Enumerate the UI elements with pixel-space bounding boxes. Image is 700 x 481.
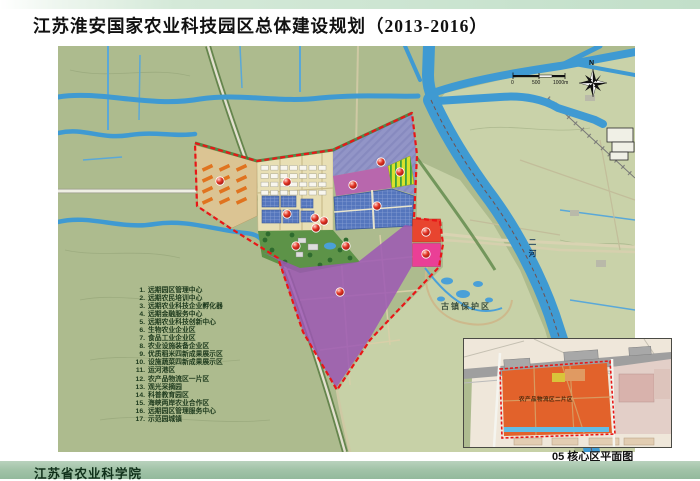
numbered-marker-icon [283,210,291,218]
numbered-marker-icon [283,178,291,186]
numbered-marker-icon [311,214,319,222]
legend-item-number: 14. [133,392,145,400]
footer-organization: 江苏省农业科学院 [34,463,142,481]
legend-item: 4.远期金融服务中心 [133,311,258,319]
legend-item-number: 1. [133,287,145,295]
legend-item-number: 8. [133,343,145,351]
legend-item-label: 科普教育园区 [148,392,189,400]
legend-item: 2.远期农民培训中心 [133,295,258,303]
inset-zone-label: 农产品物流区二片区 [519,395,573,403]
legend-item: 15.海峡两岸农业合作区 [133,400,258,408]
numbered-marker-icon [336,288,344,296]
inset-core-area-map: 农产品物流区二片区 [463,338,672,448]
legend-item-label: 远期园区管理中心 [148,287,202,295]
scale-label-500: 500 [532,80,540,86]
legend-item: 14.科普教育园区 [133,392,258,400]
legend-item-number: 2. [133,295,145,303]
legend-item: 12.农产品物流区一片区 [133,376,258,384]
legend-item-number: 3. [133,303,145,311]
numbered-marker-icon [349,181,357,189]
numbered-marker-icon [292,242,300,250]
plan-sheet: 江苏淮安国家农业科技园区总体建设规划（2013-2016） [0,0,700,481]
numbered-marker-icon [312,224,320,232]
legend-item-number: 11. [133,367,145,375]
numbered-marker-icon [373,202,381,210]
legend-item: 17.示范园城镇 [133,416,258,424]
numbered-marker-icon [422,228,430,236]
legend-item-number: 16. [133,408,145,416]
legend-item-number: 7. [133,335,145,343]
legend-item-number: 12. [133,376,145,384]
page-title: 江苏淮安国家农业科技园区总体建设规划（2013-2016） [33,13,488,38]
numbered-marker-icon [422,250,430,258]
ancient-town-label: 古镇保护区 [441,301,491,312]
inset-canvas [464,339,671,447]
legend-item-label: 海峡两岸农业合作区 [148,400,209,408]
legend-item-number: 15. [133,400,145,408]
legend-item: 3.远期农业科技企业孵化器 [133,303,258,311]
legend-item: 16.远期园区管理服务中心 [133,408,258,416]
legend-list: 1.远期园区管理中心2.远期农民培训中心3.远期农业科技企业孵化器4.远期金融服… [133,287,258,424]
top-decor-band [0,0,700,9]
numbered-marker-icon [342,242,350,250]
legend-item: 1.远期园区管理中心 [133,287,258,295]
numbered-marker-icon [377,158,385,166]
scale-label-0: 0 [511,80,514,86]
legend-item: 11.运河港区 [133,367,258,375]
numbered-marker-icon [396,168,404,176]
numbered-marker-icon [216,177,224,185]
legend-item-number: 5. [133,319,145,327]
legend-item-label: 远期农民培训中心 [148,295,202,303]
river-name-label: 二河 [527,238,538,261]
compass-north-label: N [589,60,594,67]
scale-label-1000: 1000m [553,80,568,86]
legend-item-label: 远期农业科技企业孵化器 [148,303,223,311]
legend-item-label: 远期园区管理服务中心 [148,408,216,416]
park-pond [324,243,336,250]
legend-item-number: 10. [133,359,145,367]
legend-item-number: 17. [133,416,145,424]
legend-item-label: 运河港区 [148,367,175,375]
legend-item-label: 示范园城镇 [148,416,182,424]
legend-item-number: 4. [133,311,145,319]
legend-item-label: 远期金融服务中心 [148,311,202,319]
legend-item-number: 6. [133,327,145,335]
legend-item-number: 13. [133,384,145,392]
legend-item: 13.观光采摘园 [133,384,258,392]
legend-item-label: 观光采摘园 [148,384,182,392]
legend-item-number: 9. [133,351,145,359]
legend-item-label: 农产品物流区一片区 [148,376,209,384]
numbered-marker-icon [320,217,328,225]
